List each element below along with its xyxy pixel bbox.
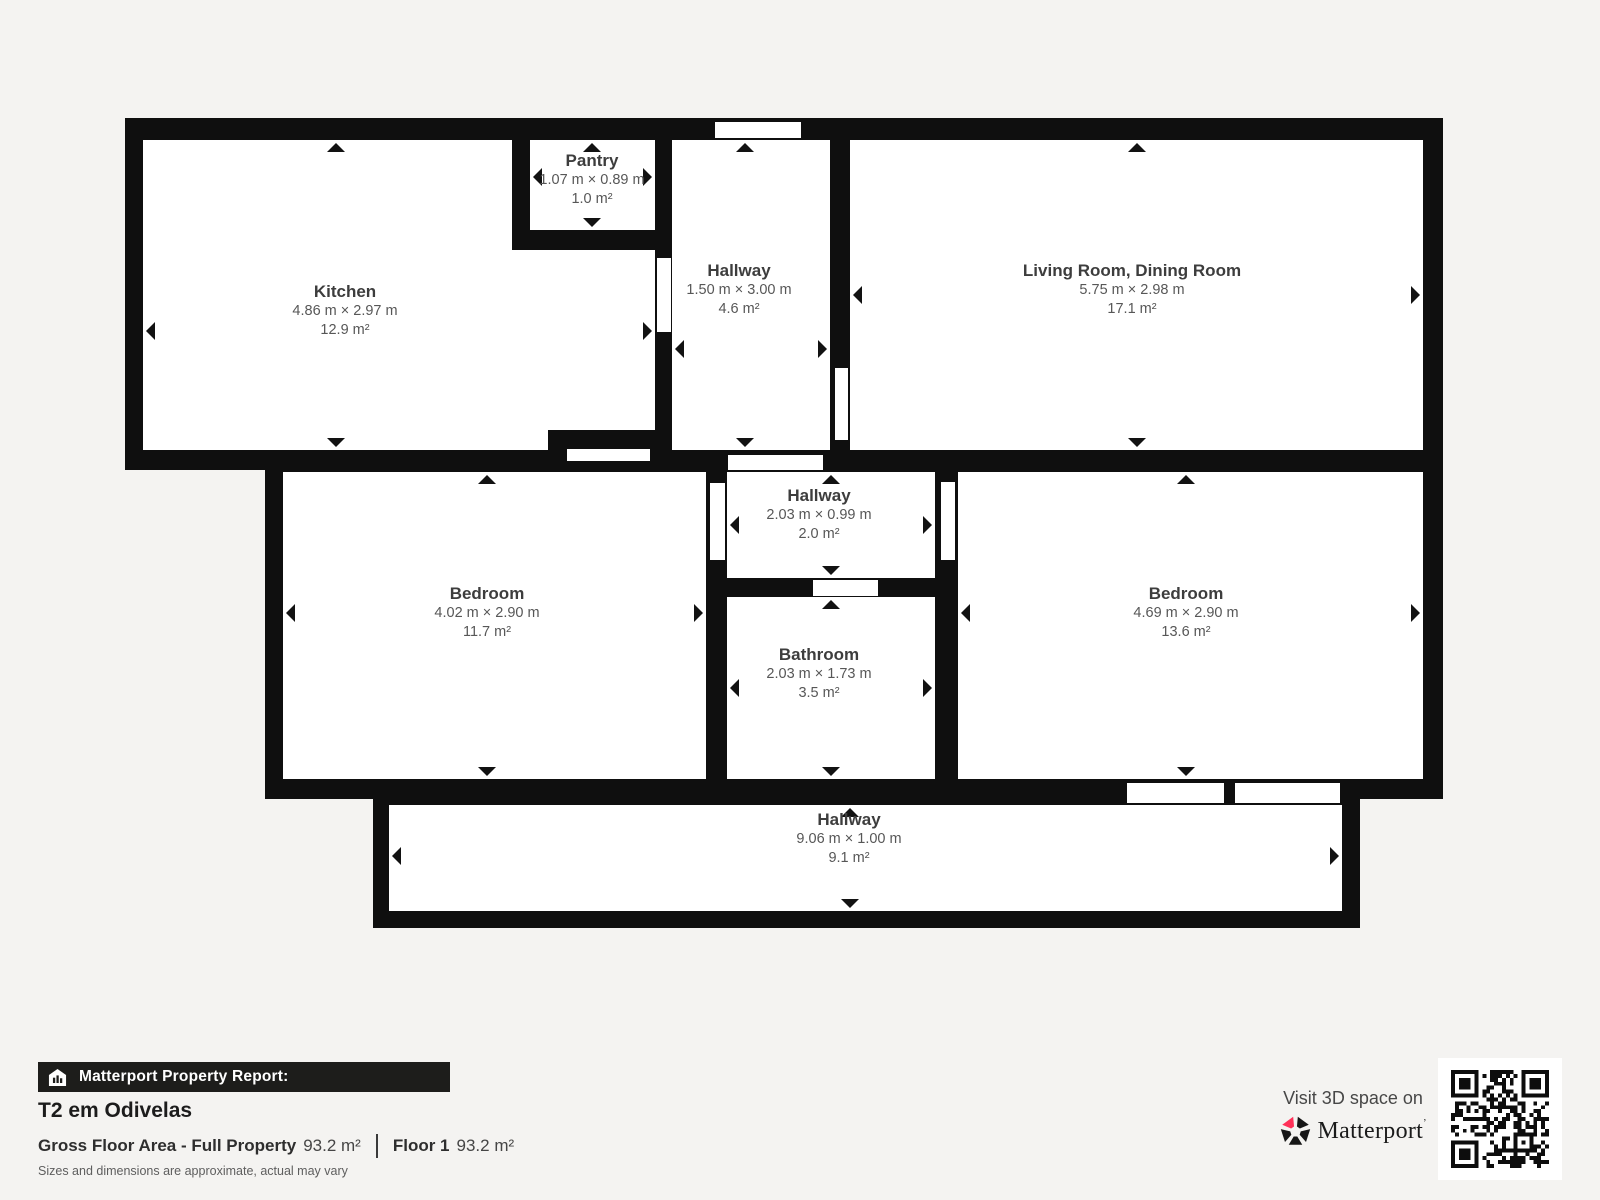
dimension-arrow bbox=[392, 847, 401, 865]
matterport-logo: Matterport ’ bbox=[1258, 1116, 1448, 1147]
room-area: 9.1 m² bbox=[796, 849, 901, 868]
dimension-arrow bbox=[961, 604, 970, 622]
matterport-wordmark: Matterport bbox=[1318, 1118, 1424, 1145]
room-label-hallway-middle: Hallway 2.03 m × 0.99 m 2.0 m² bbox=[766, 486, 871, 544]
qr-code bbox=[1438, 1058, 1562, 1180]
dimension-arrow bbox=[822, 566, 840, 575]
door-opening bbox=[1235, 783, 1340, 803]
dimension-arrow bbox=[822, 475, 840, 484]
dimension-arrow bbox=[327, 438, 345, 447]
door-opening bbox=[657, 258, 671, 332]
room-dimensions: 4.02 m × 2.90 m bbox=[434, 604, 539, 623]
room-dimensions: 2.03 m × 0.99 m bbox=[766, 506, 871, 525]
room-area: 4.6 m² bbox=[686, 300, 791, 319]
dimension-arrow bbox=[1411, 604, 1420, 622]
room-label-pantry: Pantry 1.07 m × 0.89 m 1.0 m² bbox=[539, 151, 644, 209]
dimension-arrow bbox=[1128, 438, 1146, 447]
floorplan: Kitchen 4.86 m × 2.97 m 12.9 m² Pantry 1… bbox=[0, 0, 1600, 1200]
room-name: Hallway bbox=[686, 261, 791, 281]
room-area: 2.0 m² bbox=[766, 525, 871, 544]
room-label-living-room: Living Room, Dining Room 5.75 m × 2.98 m… bbox=[1023, 261, 1241, 319]
promo-block: Visit 3D space on Matterport ’ bbox=[1258, 1088, 1448, 1147]
room-area: 11.7 m² bbox=[434, 623, 539, 642]
room-label-bedroom-right: Bedroom 4.69 m × 2.90 m 13.6 m² bbox=[1133, 584, 1238, 642]
visit-3d-label: Visit 3D space on bbox=[1258, 1088, 1448, 1109]
trademark-mark: ’ bbox=[1423, 1118, 1426, 1129]
room-name: Bedroom bbox=[434, 584, 539, 604]
door-opening bbox=[1127, 783, 1224, 803]
room-area: 12.9 m² bbox=[292, 321, 397, 340]
house-chart-icon bbox=[48, 1068, 67, 1087]
dimension-arrow bbox=[478, 475, 496, 484]
dimension-arrow bbox=[853, 286, 862, 304]
dimension-arrow bbox=[822, 767, 840, 776]
property-title: T2 em Odivelas bbox=[38, 1099, 192, 1123]
dimension-arrow bbox=[730, 516, 739, 534]
room-name: Kitchen bbox=[292, 282, 397, 302]
door-opening bbox=[835, 368, 848, 440]
dimension-arrow bbox=[694, 604, 703, 622]
dimension-arrow bbox=[1177, 475, 1195, 484]
dimension-arrow bbox=[730, 679, 739, 697]
room-dimensions: 2.03 m × 1.73 m bbox=[766, 665, 871, 684]
door-opening bbox=[710, 483, 725, 560]
dimension-arrow bbox=[1128, 143, 1146, 152]
dimension-arrow bbox=[736, 438, 754, 447]
dimension-arrow bbox=[583, 218, 601, 227]
room-dimensions: 9.06 m × 1.00 m bbox=[796, 830, 901, 849]
divider bbox=[376, 1134, 378, 1158]
room-name: Pantry bbox=[539, 151, 644, 171]
room-label-kitchen: Kitchen 4.86 m × 2.97 m 12.9 m² bbox=[292, 282, 397, 340]
dimension-arrow bbox=[1177, 767, 1195, 776]
door-opening bbox=[941, 482, 955, 560]
room-label-hallway-bottom: Hallway 9.06 m × 1.00 m 9.1 m² bbox=[796, 810, 901, 868]
dimension-arrow bbox=[841, 899, 859, 908]
room-dimensions: 1.50 m × 3.00 m bbox=[686, 281, 791, 300]
dimension-arrow bbox=[327, 143, 345, 152]
report-stats: Gross Floor Area - Full Property 93.2 m²… bbox=[38, 1134, 514, 1158]
dimension-arrow bbox=[146, 322, 155, 340]
room-area: 13.6 m² bbox=[1133, 623, 1238, 642]
room-area: 3.5 m² bbox=[766, 684, 871, 703]
door-opening bbox=[715, 122, 801, 138]
dimension-arrow bbox=[675, 340, 684, 358]
room-name: Hallway bbox=[766, 486, 871, 506]
dimension-arrow bbox=[822, 600, 840, 609]
report-bar-label: Matterport Property Report: bbox=[79, 1068, 289, 1086]
dimension-arrow bbox=[736, 143, 754, 152]
room-name: Hallway bbox=[796, 810, 901, 830]
dimension-arrow bbox=[818, 340, 827, 358]
room-dimensions: 4.69 m × 2.90 m bbox=[1133, 604, 1238, 623]
dimension-arrow bbox=[923, 516, 932, 534]
disclaimer-text: Sizes and dimensions are approximate, ac… bbox=[38, 1164, 348, 1178]
door-opening bbox=[567, 449, 650, 461]
door-opening bbox=[813, 580, 878, 596]
room-label-bathroom: Bathroom 2.03 m × 1.73 m 3.5 m² bbox=[766, 645, 871, 703]
gfa-label: Gross Floor Area - Full Property bbox=[38, 1136, 296, 1156]
dimension-arrow bbox=[286, 604, 295, 622]
room-area: 1.0 m² bbox=[539, 190, 644, 209]
room-area: 17.1 m² bbox=[1023, 300, 1241, 319]
door-opening bbox=[728, 455, 823, 470]
report-bar: Matterport Property Report: bbox=[38, 1062, 450, 1092]
room-name: Living Room, Dining Room bbox=[1023, 261, 1241, 281]
room-dimensions: 5.75 m × 2.98 m bbox=[1023, 281, 1241, 300]
floor-value: 93.2 m² bbox=[457, 1136, 515, 1156]
floor-label: Floor 1 bbox=[393, 1136, 450, 1156]
room-label-bedroom-left: Bedroom 4.02 m × 2.90 m 11.7 m² bbox=[434, 584, 539, 642]
gfa-value: 93.2 m² bbox=[303, 1136, 361, 1156]
room-dimensions: 1.07 m × 0.89 m bbox=[539, 171, 644, 190]
dimension-arrow bbox=[478, 767, 496, 776]
dimension-arrow bbox=[1411, 286, 1420, 304]
dimension-arrow bbox=[923, 679, 932, 697]
room-label-hallway-top: Hallway 1.50 m × 3.00 m 4.6 m² bbox=[686, 261, 791, 319]
room-dimensions: 4.86 m × 2.97 m bbox=[292, 302, 397, 321]
dimension-arrow bbox=[1330, 847, 1339, 865]
matterport-pinwheel-icon bbox=[1280, 1116, 1311, 1147]
room-name: Bedroom bbox=[1133, 584, 1238, 604]
room-name: Bathroom bbox=[766, 645, 871, 665]
dimension-arrow bbox=[643, 322, 652, 340]
